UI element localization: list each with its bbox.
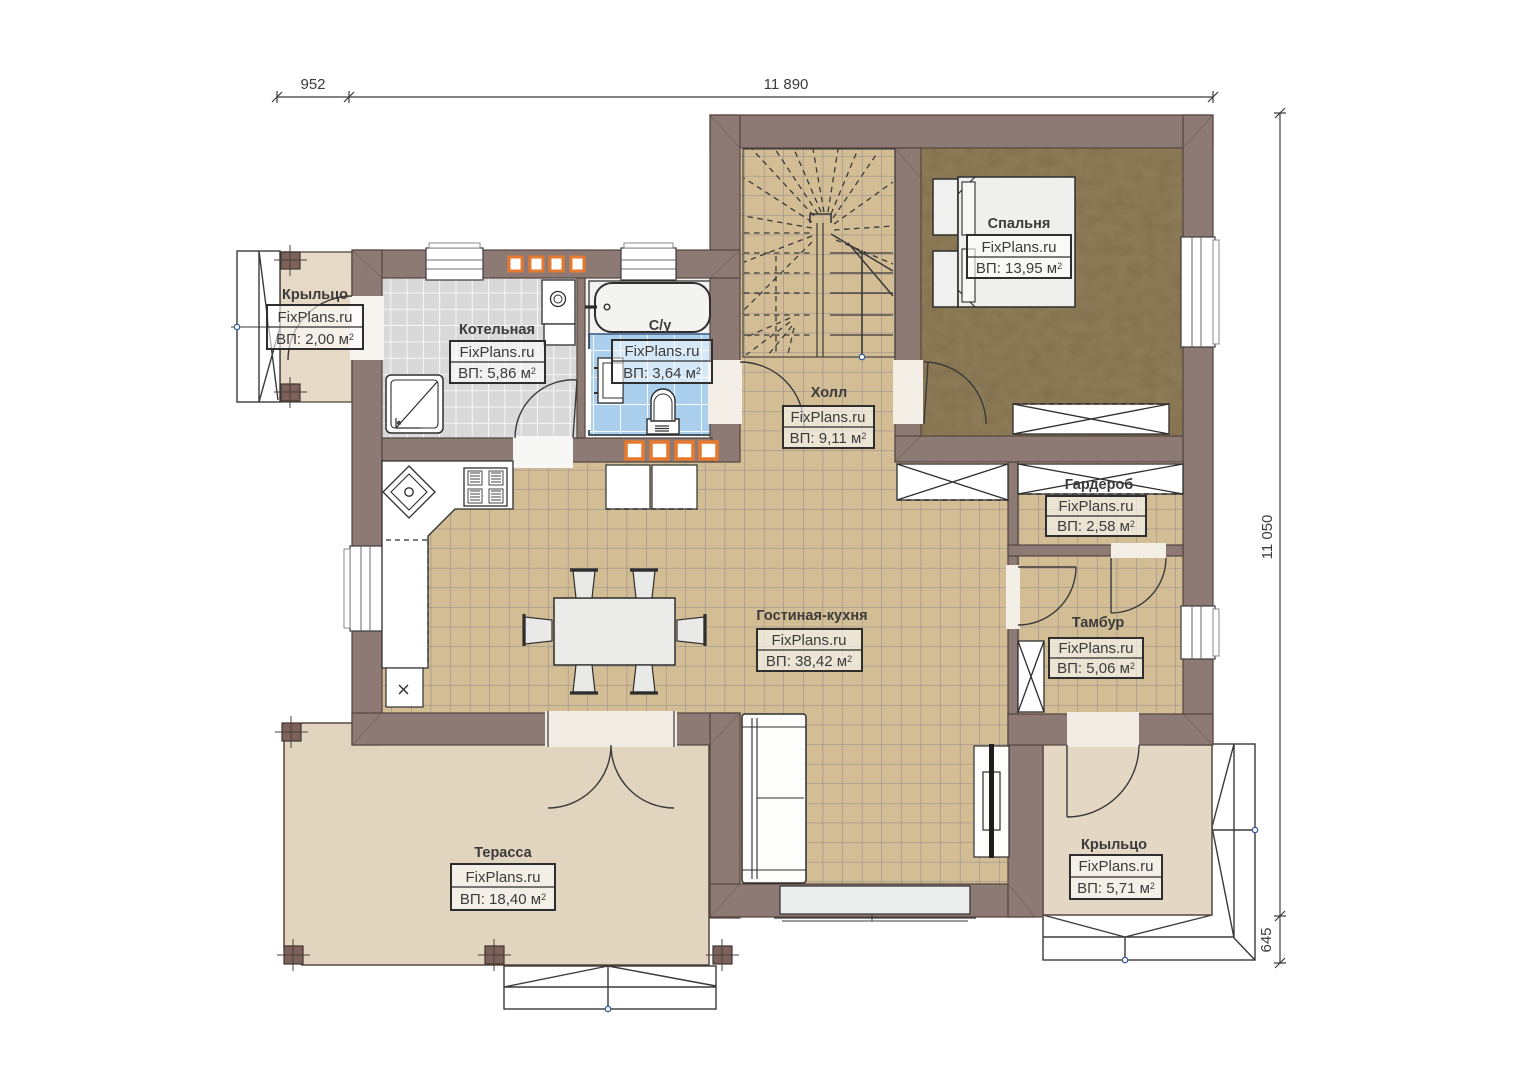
svg-text:645: 645	[1258, 927, 1275, 952]
svg-text:FixPlans.ru: FixPlans.ru	[277, 309, 352, 326]
svg-text:FixPlans.ru: FixPlans.ru	[459, 344, 534, 361]
svg-text:FixPlans.ru: FixPlans.ru	[1078, 858, 1153, 875]
svg-text:11 890: 11 890	[764, 76, 809, 93]
svg-text:11 050: 11 050	[1259, 515, 1276, 560]
svg-text:952: 952	[300, 76, 325, 93]
svg-text:ВП: 9,11 м2: ВП: 9,11 м2	[790, 430, 867, 447]
svg-text:Тамбур: Тамбур	[1072, 615, 1125, 631]
svg-text:ВП: 13,95 м2: ВП: 13,95 м2	[976, 260, 1062, 277]
svg-text:ВП: 5,86 м2: ВП: 5,86 м2	[458, 365, 536, 382]
svg-text:FixPlans.ru: FixPlans.ru	[981, 239, 1056, 256]
svg-text:FixPlans.ru: FixPlans.ru	[1058, 498, 1133, 515]
svg-text:Холл: Холл	[811, 385, 847, 401]
svg-text:ВП: 2,00 м2: ВП: 2,00 м2	[276, 331, 354, 348]
svg-text:FixPlans.ru: FixPlans.ru	[624, 343, 699, 360]
svg-text:ВП: 2,58 м2: ВП: 2,58 м2	[1057, 518, 1135, 535]
svg-text:ВП: 5,71 м2: ВП: 5,71 м2	[1077, 880, 1155, 897]
svg-text:Терасса: Терасса	[474, 845, 532, 861]
svg-text:ВП: 5,06 м2: ВП: 5,06 м2	[1057, 660, 1135, 677]
svg-text:FixPlans.ru: FixPlans.ru	[465, 869, 540, 886]
svg-text:FixPlans.ru: FixPlans.ru	[790, 409, 865, 426]
svg-text:С/у: С/у	[649, 318, 672, 334]
svg-text:Спальня: Спальня	[988, 216, 1051, 232]
svg-text:FixPlans.ru: FixPlans.ru	[771, 632, 846, 649]
svg-text:Гардероб: Гардероб	[1065, 477, 1134, 493]
svg-text:Крыльцо: Крыльцо	[282, 287, 348, 303]
svg-text:ВП: 38,42 м2: ВП: 38,42 м2	[766, 653, 852, 670]
svg-text:Котельная: Котельная	[459, 322, 535, 338]
svg-text:Крыльцо: Крыльцо	[1081, 837, 1147, 853]
svg-text:ВП: 3,64 м2: ВП: 3,64 м2	[623, 365, 701, 382]
svg-text:ВП: 18,40 м2: ВП: 18,40 м2	[460, 891, 546, 908]
svg-text:Гостиная-кухня: Гостиная-кухня	[756, 608, 867, 624]
svg-text:FixPlans.ru: FixPlans.ru	[1058, 640, 1133, 657]
